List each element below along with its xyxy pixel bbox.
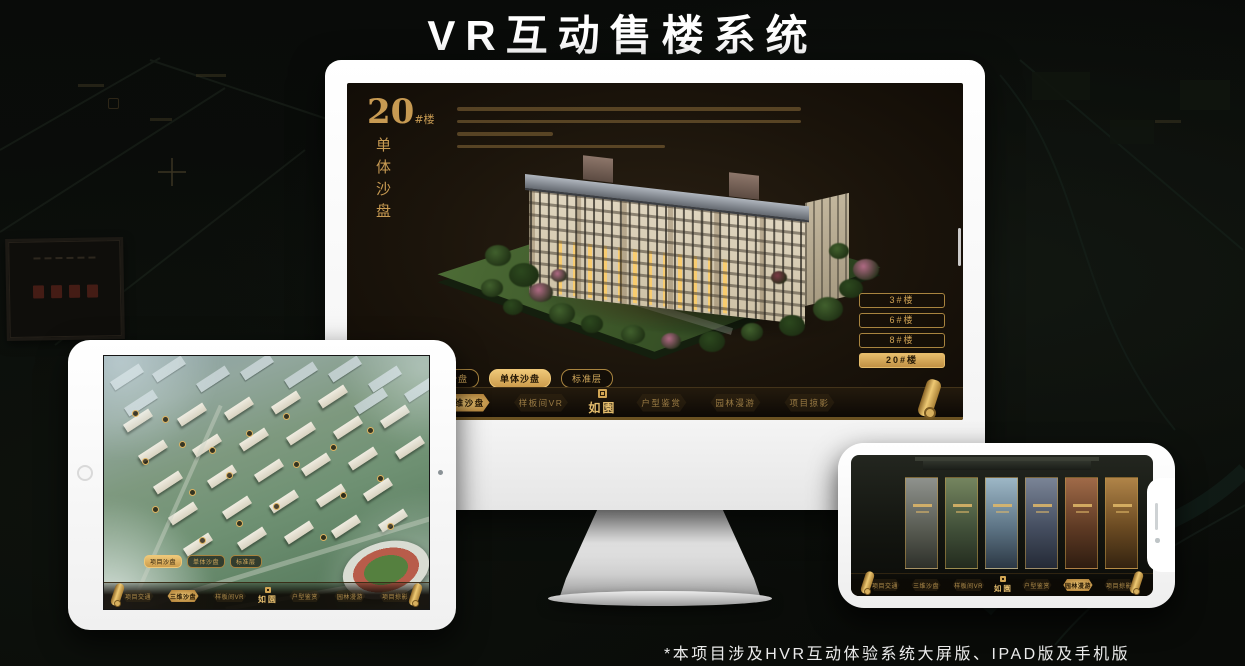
model-tree [699, 331, 725, 352]
logo-text: 如園 [588, 399, 616, 416]
tablet-nav-bar: 项目交通 三维沙盘 样板间VR 如園 户型鉴赏 园林漫游 项目掠影 [104, 582, 429, 609]
building-number-badge[interactable] [320, 534, 327, 541]
building-button-3[interactable]: 3#楼 [859, 293, 945, 308]
tablet-nav-showroom-vr[interactable]: 样板间VR [210, 590, 249, 602]
building-number-badge[interactable] [367, 427, 374, 434]
model-tree [485, 245, 511, 266]
panel-caption [993, 504, 1012, 507]
model-tree [503, 299, 523, 315]
panorama-panel[interactable] [1105, 477, 1138, 569]
block-name-vertical: 单体沙盘 [373, 137, 394, 257]
plaque-small-text [8, 256, 120, 260]
seal-icon [1000, 576, 1006, 582]
page-title: VR互动售楼系统 [0, 2, 1245, 63]
phone-nav-garden-tour-active[interactable]: 园林漫游 [1061, 579, 1095, 591]
building-number-badge[interactable] [226, 472, 233, 479]
phone-camera [1155, 538, 1160, 543]
tablet-nav-floorplans[interactable]: 户型鉴赏 [287, 590, 323, 602]
description-text-lines [457, 107, 801, 157]
phone-nav-bar: 项目交通 三维沙盘 样板间VR 如園 户型鉴赏 园林漫游 项目掠影 [851, 573, 1153, 596]
panel-caption [1076, 511, 1089, 513]
tablet-nav-project-gallery[interactable]: 项目掠影 [377, 590, 413, 602]
model-tree [481, 279, 503, 297]
panorama-panel[interactable] [1025, 477, 1058, 569]
panorama-panel[interactable] [985, 477, 1018, 569]
building-selector: 3#楼 6#楼 8#楼 20#楼 [859, 293, 945, 373]
building-number-badge[interactable] [377, 475, 384, 482]
tablet-home-button[interactable] [77, 465, 93, 481]
building-button-6[interactable]: 6#楼 [859, 313, 945, 328]
app-logo: 如園 [588, 389, 616, 416]
logo-text: 如園 [994, 583, 1013, 594]
building-roof-tower [729, 172, 759, 199]
model-tree [551, 269, 567, 282]
model-tree [661, 333, 681, 349]
building-number-badge[interactable] [162, 416, 169, 423]
phone-nav-3d-sandtable[interactable]: 三维沙盘 [909, 579, 943, 591]
phone-nav-showroom-vr[interactable]: 样板间VR [950, 579, 987, 591]
panel-caption [1113, 504, 1132, 507]
panel-caption [1036, 511, 1049, 513]
model-tree [779, 315, 805, 336]
phone-nav-project-traffic[interactable]: 项目交通 [868, 579, 902, 591]
building-number-badge[interactable] [179, 441, 186, 448]
scroll-icon[interactable] [863, 571, 872, 594]
model-tree [529, 283, 553, 302]
scroll-icon[interactable] [113, 583, 122, 606]
nav-item-showroom-vr[interactable]: 样板间VR [510, 394, 573, 412]
building-number-badge[interactable] [293, 461, 300, 468]
panel-caption [913, 504, 932, 507]
building-number-badge[interactable] [283, 413, 290, 420]
panorama-panel[interactable] [905, 477, 938, 569]
tablet-nav-garden-tour[interactable]: 园林漫游 [332, 590, 368, 602]
tablet-camera [438, 470, 443, 475]
phone-app-logo: 如園 [994, 576, 1013, 594]
phone-notch [1147, 478, 1175, 572]
scroll-icon[interactable] [922, 379, 937, 417]
tablet-subtab-standard-floor[interactable]: 标准层 [230, 555, 262, 568]
panel-caption [1073, 504, 1092, 507]
building-number-badge[interactable] [273, 503, 280, 510]
building-number-badge[interactable] [236, 520, 243, 527]
tablet-screen: 项目沙盘 单体沙盘 标准层 项目交通 三维沙盘 样板间VR 如園 户型鉴赏 园林… [103, 355, 430, 610]
building-number-badge[interactable] [330, 444, 337, 451]
panel-caption [1033, 504, 1052, 507]
seal-icon [265, 587, 271, 593]
building-number-badge[interactable] [209, 447, 216, 454]
nav-item-garden-tour[interactable]: 园林漫游 [706, 394, 764, 412]
tablet-subtab-project-sandtable-active[interactable]: 项目沙盘 [144, 555, 182, 568]
building-number-badge[interactable] [132, 410, 139, 417]
footnote: *本项目涉及HVR互动体验系统大屏版、IPAD版及手机版 [664, 640, 1130, 664]
panel-caption [916, 511, 929, 513]
panorama-panel[interactable] [1065, 477, 1098, 569]
panel-caption [996, 511, 1009, 513]
nav-item-project-gallery[interactable]: 项目掠影 [780, 394, 838, 412]
building-roof-tower [583, 155, 613, 182]
model-tree [853, 259, 879, 280]
tablet-nav-3d-sandtable-active[interactable]: 三维沙盘 [165, 590, 201, 602]
building-number-badge[interactable] [199, 537, 206, 544]
subtab-standard-floor[interactable]: 标准层 [561, 369, 613, 388]
plaque-red-seal-text [9, 284, 121, 299]
tablet-nav-project-traffic[interactable]: 项目交通 [120, 590, 156, 602]
building-number-badge[interactable] [189, 489, 196, 496]
tablet-device: 项目沙盘 单体沙盘 标准层 项目交通 三维沙盘 样板间VR 如園 户型鉴赏 园林… [68, 340, 456, 630]
model-tree [621, 325, 645, 344]
model-tree [581, 315, 603, 333]
model-tree [771, 271, 787, 284]
building-number-badge[interactable] [387, 523, 394, 530]
tablet-sub-tabs: 项目沙盘 单体沙盘 标准层 [144, 555, 262, 568]
panel-caption [956, 511, 969, 513]
building-number-badge[interactable] [142, 458, 149, 465]
model-tree [549, 303, 575, 324]
panorama-panel[interactable] [945, 477, 978, 569]
award-plaque [5, 237, 125, 341]
gate-beam [923, 461, 1091, 470]
scroll-icon[interactable] [411, 583, 420, 606]
block-unit: #楼 [414, 113, 434, 126]
building-3d-model[interactable] [433, 153, 885, 365]
screen-scrollbar[interactable] [958, 228, 961, 266]
model-tree [829, 243, 849, 259]
subtab-single-sandtable-active[interactable]: 单体沙盘 [489, 369, 551, 388]
scroll-icon[interactable] [1132, 571, 1141, 594]
logo-text: 如園 [258, 594, 278, 605]
monitor-stand-base [548, 591, 772, 606]
phone-speaker [1155, 503, 1158, 530]
seal-icon [598, 389, 607, 398]
panel-caption [953, 504, 972, 507]
block-number: 20 [367, 92, 414, 132]
building-number-badge[interactable] [152, 506, 159, 513]
tablet-app-logo: 如園 [258, 587, 278, 605]
model-tree [741, 323, 763, 341]
phone-screen: 项目交通 三维沙盘 样板间VR 如園 户型鉴赏 园林漫游 项目掠影 [851, 455, 1153, 596]
map-marker-chip [108, 98, 119, 109]
nav-item-floorplans[interactable]: 户型鉴赏 [632, 394, 690, 412]
building-number-badge[interactable] [340, 492, 347, 499]
model-tree [813, 297, 843, 321]
block-title: 20#楼 单体沙盘 [367, 95, 435, 257]
phone-nav-floorplans[interactable]: 户型鉴赏 [1020, 579, 1054, 591]
building-button-20-active[interactable]: 20#楼 [859, 353, 945, 368]
building-button-8[interactable]: 8#楼 [859, 333, 945, 348]
tablet-subtab-single-sandtable[interactable]: 单体沙盘 [187, 555, 225, 568]
building-number-badge[interactable] [246, 430, 253, 437]
phone-device: 项目交通 三维沙盘 样板间VR 如園 户型鉴赏 园林漫游 项目掠影 [838, 443, 1175, 608]
panel-caption [1116, 511, 1129, 513]
panorama-gallery [905, 477, 1138, 569]
